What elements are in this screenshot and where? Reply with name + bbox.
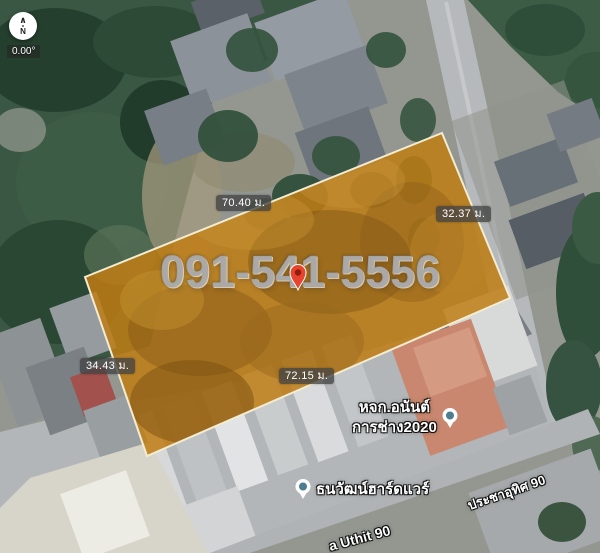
compass-needle-icon: ∧ <box>19 16 26 24</box>
measurement-left: 34.43 ม. <box>80 358 135 374</box>
poi-pin-icon <box>441 407 459 429</box>
poi-hardware-store[interactable]: ธนวัฒน์ฮาร์ดแวร์ <box>294 477 429 501</box>
poi-pin-icon <box>294 478 312 500</box>
map-viewport[interactable]: 091-541-5556 70.40 ม. 32.37 ม. 34.43 ม. … <box>0 0 600 553</box>
compass-heading: 0.00° <box>7 45 40 58</box>
compass-north-label: N <box>20 28 26 36</box>
poi-hardware-store-label: ธนวัฒน์ฮาร์ดแวร์ <box>316 477 429 501</box>
measurement-top: 70.40 ม. <box>216 195 271 211</box>
location-pin-icon[interactable] <box>288 263 308 291</box>
poi-contractor[interactable]: หจก.อนันต์ การช่าง2020 <box>352 398 459 438</box>
poi-contractor-line2: การช่าง2020 <box>352 418 437 438</box>
measurement-right: 32.37 ม. <box>436 206 491 222</box>
compass-button[interactable]: ∧ N <box>9 12 37 40</box>
measurement-bottom: 72.15 ม. <box>279 368 334 384</box>
poi-contractor-line1: หจก.อนันต์ <box>352 398 437 418</box>
